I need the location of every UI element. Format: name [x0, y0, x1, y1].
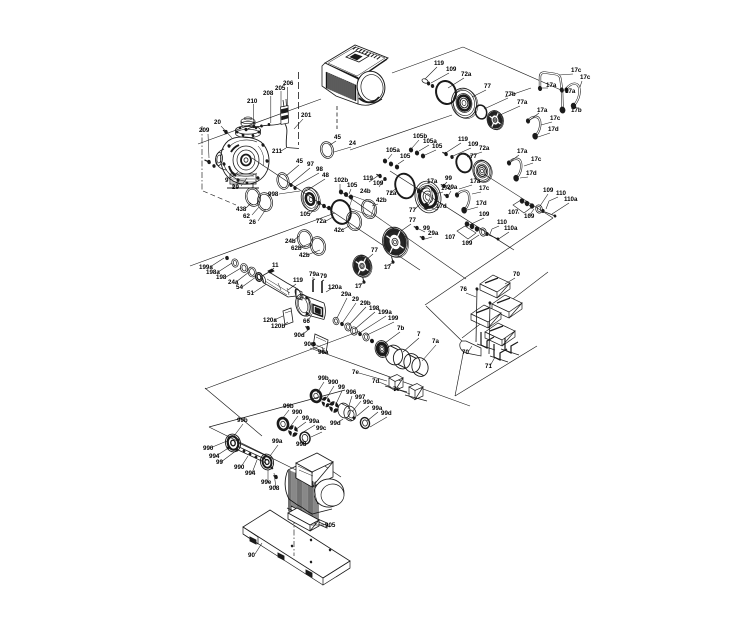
- svg-text:119: 119: [434, 60, 445, 67]
- svg-text:994: 994: [245, 470, 256, 477]
- svg-text:26: 26: [249, 219, 256, 226]
- svg-text:90: 90: [248, 552, 255, 559]
- svg-text:120b: 120b: [271, 323, 285, 330]
- svg-text:9: 9: [225, 177, 229, 184]
- svg-text:109: 109: [446, 66, 457, 73]
- svg-text:110a: 110a: [564, 196, 578, 203]
- svg-text:17: 17: [355, 283, 362, 290]
- svg-text:210: 210: [247, 98, 258, 105]
- svg-text:42c: 42c: [334, 227, 345, 234]
- svg-text:99: 99: [216, 459, 223, 466]
- svg-text:201: 201: [301, 112, 312, 119]
- svg-text:7d: 7d: [372, 378, 379, 385]
- svg-text:24b: 24b: [285, 238, 296, 245]
- svg-text:76: 76: [460, 286, 467, 293]
- svg-text:199: 199: [388, 315, 399, 322]
- svg-text:17c: 17c: [550, 115, 561, 122]
- svg-text:105: 105: [400, 153, 411, 160]
- svg-text:42b: 42b: [299, 252, 310, 259]
- svg-text:7a: 7a: [432, 338, 439, 345]
- svg-text:105: 105: [432, 143, 443, 150]
- svg-text:17c: 17c: [479, 185, 490, 192]
- svg-text:48: 48: [322, 172, 329, 179]
- svg-text:29: 29: [232, 184, 239, 191]
- svg-text:107: 107: [445, 234, 456, 241]
- svg-text:990: 990: [203, 445, 214, 452]
- svg-text:109: 109: [479, 211, 490, 218]
- svg-text:77: 77: [409, 217, 416, 224]
- svg-text:119: 119: [458, 136, 469, 143]
- svg-text:79a: 79a: [309, 271, 320, 278]
- svg-text:17a: 17a: [470, 178, 481, 185]
- svg-text:17c: 17c: [531, 156, 542, 163]
- svg-text:54: 54: [236, 284, 243, 291]
- svg-text:97: 97: [307, 161, 314, 168]
- svg-text:109: 109: [468, 141, 479, 148]
- svg-text:72a: 72a: [461, 71, 472, 78]
- svg-text:17a: 17a: [427, 178, 438, 185]
- svg-text:17a: 17a: [517, 148, 528, 155]
- svg-text:70: 70: [513, 271, 520, 278]
- svg-text:29: 29: [352, 296, 359, 303]
- svg-text:109: 109: [462, 240, 473, 247]
- svg-text:17d: 17d: [548, 126, 559, 133]
- svg-text:17a: 17a: [565, 88, 576, 95]
- svg-text:99c: 99c: [316, 425, 327, 432]
- svg-text:51: 51: [247, 290, 254, 297]
- svg-text:24b: 24b: [360, 188, 371, 195]
- svg-text:105: 105: [347, 182, 358, 189]
- svg-text:99d: 99d: [381, 410, 392, 417]
- svg-text:120a: 120a: [328, 284, 342, 291]
- svg-text:7c: 7c: [393, 386, 400, 393]
- svg-text:119: 119: [363, 175, 374, 182]
- svg-text:905: 905: [325, 522, 336, 529]
- svg-text:77: 77: [409, 207, 416, 214]
- svg-text:990: 990: [234, 464, 245, 471]
- svg-text:7e: 7e: [352, 369, 359, 376]
- svg-text:99a: 99a: [309, 418, 320, 425]
- svg-text:105a: 105a: [386, 147, 400, 154]
- svg-text:77a: 77a: [517, 99, 528, 106]
- svg-text:998: 998: [268, 191, 279, 198]
- svg-text:20: 20: [214, 119, 221, 126]
- svg-text:7b: 7b: [397, 325, 404, 332]
- svg-text:109: 109: [373, 180, 384, 187]
- svg-text:99: 99: [338, 384, 345, 391]
- svg-text:72a: 72a: [479, 145, 490, 152]
- svg-text:17d: 17d: [476, 200, 487, 207]
- svg-text:119: 119: [293, 277, 304, 284]
- svg-text:77: 77: [371, 247, 378, 254]
- svg-text:17d: 17d: [526, 170, 537, 177]
- svg-text:29a: 29a: [341, 291, 352, 298]
- svg-text:99: 99: [445, 175, 452, 182]
- svg-text:24: 24: [349, 140, 356, 147]
- svg-text:62b: 62b: [291, 245, 302, 252]
- svg-text:77: 77: [470, 153, 477, 160]
- svg-text:17b: 17b: [571, 107, 582, 114]
- svg-text:107: 107: [508, 209, 519, 216]
- svg-text:11: 11: [272, 262, 279, 269]
- svg-text:90d: 90d: [294, 332, 305, 339]
- svg-text:198: 198: [216, 274, 227, 281]
- svg-text:45: 45: [334, 134, 341, 141]
- svg-text:17c: 17c: [580, 74, 591, 81]
- svg-text:109: 109: [524, 213, 535, 220]
- svg-text:99a: 99a: [272, 438, 283, 445]
- svg-text:110a: 110a: [504, 225, 518, 232]
- svg-text:42b: 42b: [376, 197, 387, 204]
- svg-text:77b: 77b: [505, 91, 516, 98]
- svg-text:99b: 99b: [237, 417, 248, 424]
- svg-text:7: 7: [417, 331, 421, 338]
- svg-text:72a: 72a: [386, 190, 397, 197]
- svg-text:45: 45: [296, 158, 303, 165]
- svg-text:209: 209: [199, 127, 210, 134]
- svg-text:208: 208: [263, 90, 274, 97]
- svg-text:109: 109: [543, 187, 554, 194]
- svg-text:211: 211: [272, 148, 283, 155]
- svg-text:438: 438: [236, 206, 247, 213]
- svg-text:105: 105: [300, 211, 311, 218]
- svg-text:29a: 29a: [428, 230, 439, 237]
- svg-text:72a: 72a: [316, 218, 327, 225]
- svg-text:998: 998: [296, 441, 307, 448]
- svg-text:17d: 17d: [436, 203, 447, 210]
- svg-text:908: 908: [269, 485, 280, 492]
- svg-text:17c: 17c: [571, 67, 582, 74]
- svg-text:99d: 99d: [330, 420, 341, 427]
- svg-text:70: 70: [462, 349, 469, 356]
- svg-text:17c: 17c: [441, 185, 452, 192]
- svg-text:79: 79: [320, 273, 327, 280]
- svg-text:17: 17: [384, 264, 391, 271]
- svg-text:206: 206: [283, 80, 294, 87]
- svg-text:77: 77: [484, 83, 491, 90]
